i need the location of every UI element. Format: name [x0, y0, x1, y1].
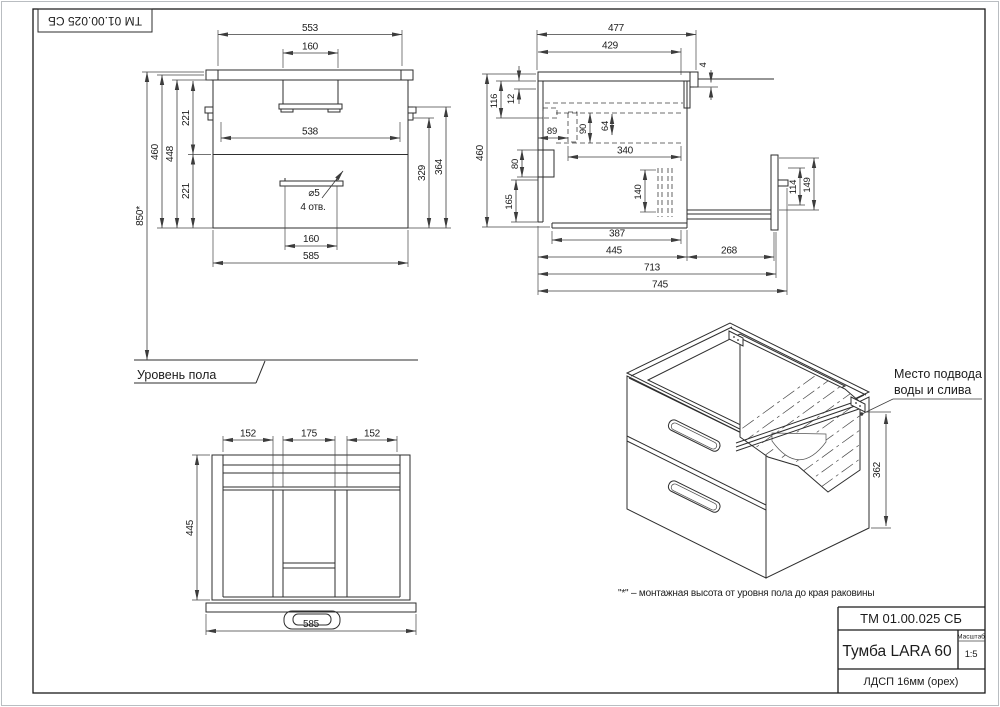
hole-count-label: 4 отв. — [300, 202, 325, 213]
leader-dot — [860, 412, 864, 416]
hole-leader — [322, 171, 343, 198]
front-mounting-rail — [279, 104, 342, 109]
title-block-scale-label: Масштаб — [957, 633, 985, 641]
dim-front-221-upper: 221 — [181, 109, 192, 126]
dim-front-329: 329 — [417, 164, 428, 181]
dim-front-448: 448 — [165, 145, 176, 162]
title-block: ТМ 01.00.025 СБ Тумба LARA 60 Масштаб 1:… — [838, 607, 985, 693]
dim-side-80: 80 — [510, 159, 521, 169]
dim-plan-152-right: 152 — [364, 429, 381, 440]
floor-level-label: Уровень пола — [137, 368, 216, 382]
dim-side-445: 445 — [606, 246, 623, 257]
dim-plan-445: 445 — [185, 519, 196, 536]
dim-side-268: 268 — [721, 246, 738, 257]
water-note-line2: воды и слива — [894, 383, 971, 397]
dim-side-165: 165 — [504, 194, 515, 209]
dim-iso-362: 362 — [872, 461, 883, 478]
dim-side-12: 12 — [506, 94, 517, 104]
dim-side-745: 745 — [652, 280, 669, 291]
title-block-product-title: Тумба LARA 60 — [842, 643, 952, 660]
dim-front-160-top: 160 — [302, 42, 319, 53]
dim-side-4: 4 — [698, 62, 709, 67]
iso-view: Место подвода воды и слива 362 — [560, 323, 1000, 578]
dim-side-477: 477 — [608, 23, 625, 34]
wall-bracket-plate — [771, 155, 778, 230]
dim-front-221-lower: 221 — [181, 182, 192, 199]
dim-side-140: 140 — [633, 184, 644, 199]
dim-side-114: 114 — [788, 180, 799, 195]
side-countertop — [538, 72, 690, 81]
stamp-top-left: ТМ 01.00.025 СБ — [48, 14, 142, 28]
dim-side-340: 340 — [617, 146, 634, 157]
title-block-material: ЛДСП 16мм (орех) — [864, 676, 959, 688]
dim-plan-175: 175 — [301, 429, 318, 440]
drawing-sheet: ТМ 01.00.025 СБ 553 160 — [0, 0, 1000, 707]
dim-front-538: 538 — [302, 127, 319, 138]
dim-front-850: 850* — [135, 206, 146, 226]
dim-side-460: 460 — [475, 144, 486, 161]
water-note-line1: Место подвода — [894, 367, 982, 381]
dim-side-387: 387 — [609, 229, 626, 240]
dim-front-460: 460 — [150, 143, 161, 160]
dim-side-64: 64 — [600, 121, 611, 131]
dim-side-90: 90 — [578, 124, 589, 134]
dim-side-116: 116 — [489, 94, 500, 109]
mounting-note: "*" – монтажная высота от уровня пола до… — [618, 588, 874, 599]
sheet-frame: ТМ 01.00.025 СБ — [2, 2, 999, 706]
hole-diameter-label: ⌀5 — [308, 188, 320, 199]
front-view: 553 160 538 850* 460 448 221 221 364 329 — [134, 23, 451, 383]
dim-side-429: 429 — [602, 41, 619, 52]
dim-front-585: 585 — [303, 251, 320, 262]
dim-plan-585: 585 — [303, 619, 320, 630]
dim-front-553: 553 — [302, 23, 319, 34]
dim-side-89: 89 — [547, 126, 557, 137]
side-view: 477 429 4 116 12 89 90 64 340 460 80 — [475, 23, 819, 295]
dim-side-713: 713 — [644, 263, 661, 274]
dim-front-160-bottom: 160 — [303, 234, 320, 245]
dim-side-149: 149 — [802, 177, 813, 192]
title-block-doc-number: ТМ 01.00.025 СБ — [860, 611, 962, 626]
plan-view: 152 175 152 445 585 — [185, 429, 416, 636]
dim-front-364: 364 — [434, 158, 445, 175]
dim-plan-152-left: 152 — [240, 429, 257, 440]
front-countertop — [206, 70, 413, 80]
plan-body — [212, 455, 410, 600]
title-block-scale-value: 1:5 — [965, 649, 978, 660]
